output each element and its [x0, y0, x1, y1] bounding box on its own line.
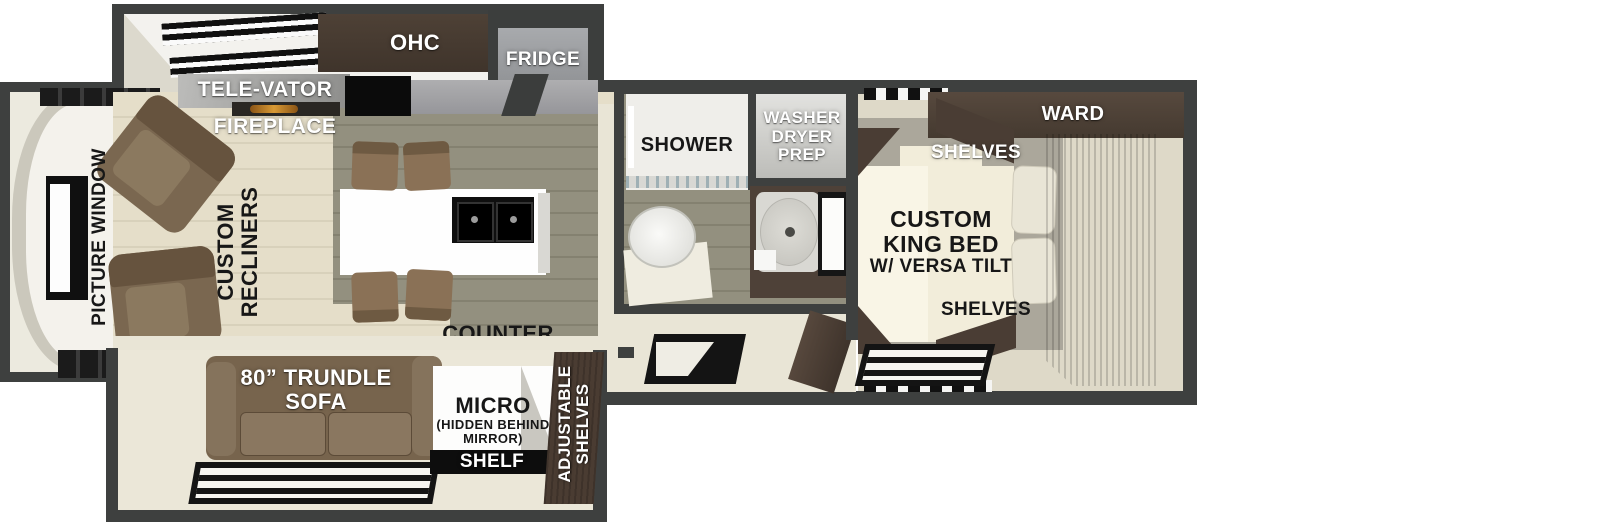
sink-faucet-right [510, 216, 517, 223]
adjustable-shelves-label: ADJUSTABLE SHELVES [553, 344, 595, 504]
micro-line3: MIRROR) [463, 432, 523, 446]
toilet-tissue-box [754, 250, 776, 270]
picture-window-label: PICTURE WINDOW [87, 142, 113, 332]
sofa-line1: 80” TRUNDLE [240, 366, 391, 390]
kitchen-island-end [538, 193, 550, 273]
washer-dryer-bottom-wall [756, 178, 848, 186]
sofa-slideout-wall-left [106, 348, 118, 522]
main-wall-right [1183, 80, 1197, 405]
custom-recliners-label: CUSTOM RECLINERS [215, 162, 261, 342]
shelves-top-label: SHELVES [916, 142, 1036, 164]
bath-sink [628, 206, 696, 268]
trundle-sofa-label: 80” TRUNDLE SOFA [216, 366, 416, 414]
fireplace-label: FIREPLACE [205, 116, 345, 138]
micro-line1: MICRO [455, 394, 530, 418]
toilet-flush-button [785, 227, 795, 237]
chair-back [405, 307, 452, 321]
king-bed-line1: CUSTOM [890, 207, 992, 232]
entry-step-well [644, 334, 746, 384]
bath-divider-wall [748, 94, 756, 190]
sink-faucet-left [471, 216, 478, 223]
recliners-line1: CUSTOM [214, 203, 238, 300]
recliners-line2: RECLINERS [238, 187, 262, 318]
sofa-line2: SOFA [285, 390, 347, 414]
adjustable-line1: ADJUSTABLE [556, 365, 574, 482]
micro-line2: (HIDDEN BEHIND [436, 418, 549, 432]
micro-label: MICRO (HIDDEN BEHIND MIRROR) [433, 390, 553, 450]
tv-televator [345, 76, 411, 116]
island-sink [452, 197, 534, 243]
bedroom-rug [855, 344, 995, 386]
wardrobe-column [1046, 134, 1158, 386]
chair-back [352, 309, 398, 323]
island-chair-3 [351, 271, 399, 323]
fireplace-glow [250, 105, 298, 113]
front-window-pane [50, 184, 70, 292]
sofa-slideout-wall-bottom [106, 510, 605, 522]
shelf-bar: SHELF [430, 450, 554, 474]
king-bed-label: CUSTOM KING BED W/ VERSA TILT [856, 206, 1026, 278]
televator-label: TELE-VATOR [185, 79, 345, 101]
shelf-label: SHELF [430, 450, 554, 474]
shelves-bottom-label: SHELVES [926, 299, 1046, 321]
shower-label: SHOWER [628, 134, 746, 158]
main-wall-bottom [594, 391, 1197, 405]
sofa-cushion-right [328, 412, 412, 456]
ohc-label: OHC [318, 14, 512, 72]
washer-dryer-prep-label: WASHER DRYER PREP [756, 106, 848, 168]
overhead-cabinet: OHC [318, 14, 512, 72]
wd-line1: WASHER [763, 109, 840, 127]
entry-step-tread [656, 342, 714, 376]
floorplan-canvas: OHC FRIDGE TELE-VATOR FIREPLACE COUNTER [0, 0, 1600, 531]
king-bed-line2: KING BED [883, 232, 999, 257]
chair-back [352, 141, 398, 155]
chair-back [403, 141, 450, 155]
island-chair-2 [403, 141, 451, 191]
wd-line2: DRYER [772, 128, 833, 146]
bath-window-pane [822, 198, 844, 270]
island-chair-1 [351, 141, 399, 191]
wd-line3: PREP [778, 146, 826, 164]
sofa-rug [188, 462, 439, 504]
king-bed-line3: W/ VERSA TILT [870, 257, 1012, 278]
shower-toiletry-shelf [626, 176, 748, 188]
island-chair-4 [405, 269, 454, 321]
recliner-seat [125, 282, 190, 342]
ward-label: WARD [1018, 104, 1128, 126]
adjustable-line2: SHELVES [574, 384, 592, 465]
sofa-cushion-left [240, 412, 326, 456]
